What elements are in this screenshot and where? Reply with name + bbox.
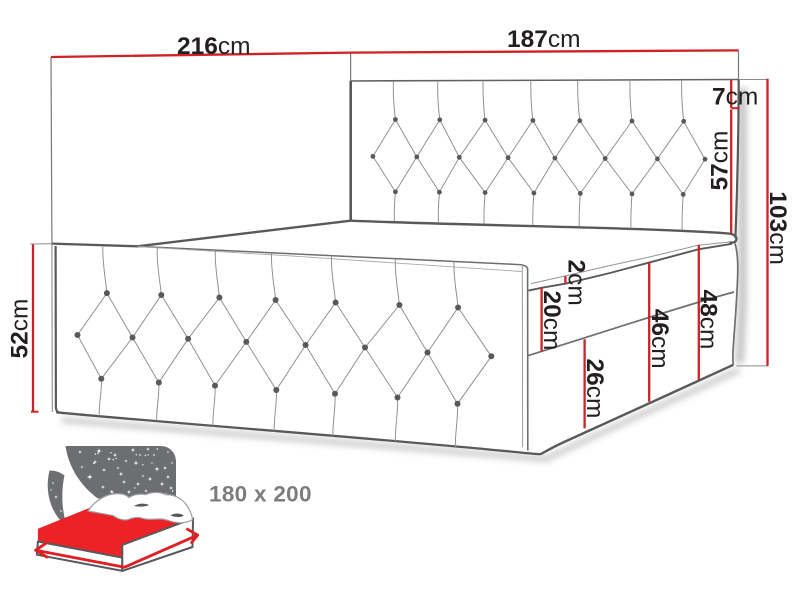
svg-text:103cm: 103cm xyxy=(764,191,791,265)
svg-text:48cm: 48cm xyxy=(695,290,722,350)
svg-text:180 x 200: 180 x 200 xyxy=(209,482,312,507)
svg-text:20cm: 20cm xyxy=(538,291,565,351)
svg-text:216cm: 216cm xyxy=(177,33,251,60)
svg-text:57cm: 57cm xyxy=(707,131,734,191)
svg-text:46cm: 46cm xyxy=(646,309,673,369)
svg-text:7cm: 7cm xyxy=(712,84,758,111)
svg-text:52cm: 52cm xyxy=(7,299,34,359)
svg-text:187cm: 187cm xyxy=(507,26,581,53)
svg-text:26cm: 26cm xyxy=(581,359,608,419)
svg-text:2cm: 2cm xyxy=(563,260,590,306)
